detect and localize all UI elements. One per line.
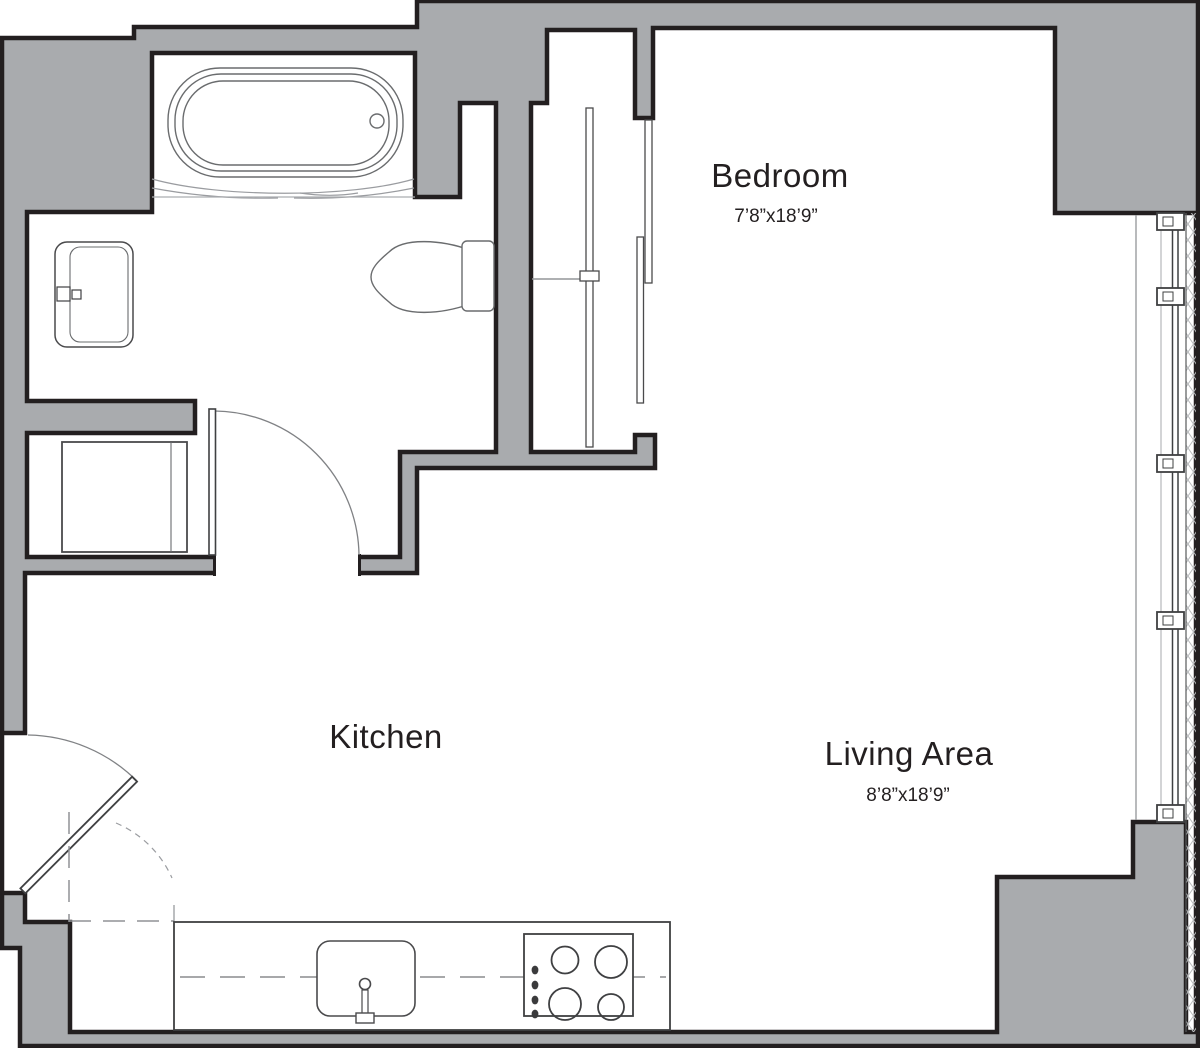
entry-door-swing-arc-dashed bbox=[116, 823, 172, 878]
sliding-panel-rear bbox=[645, 120, 652, 283]
living-area-label: Living Area bbox=[825, 735, 994, 772]
tub-drain bbox=[370, 114, 384, 128]
kitchen-label: Kitchen bbox=[329, 718, 443, 755]
bathroom-door-leaf bbox=[209, 409, 216, 555]
washer bbox=[62, 442, 187, 552]
bedroom-dimensions: 7’8”x18’9” bbox=[734, 206, 817, 227]
entry-door bbox=[20, 735, 172, 893]
sliding-panel-front bbox=[637, 237, 644, 403]
vanity-sink bbox=[55, 242, 133, 347]
toilet-tank bbox=[462, 241, 494, 311]
mullion bbox=[1157, 213, 1184, 230]
bathroom-door-swing-arc bbox=[215, 411, 359, 555]
living-area-dimensions: 8’8”x18’9” bbox=[866, 785, 949, 806]
toilet bbox=[371, 241, 494, 312]
bathroom-door bbox=[209, 409, 359, 555]
mullion bbox=[1157, 805, 1184, 822]
bedroom-label: Bedroom bbox=[711, 157, 848, 194]
mullion bbox=[1157, 288, 1184, 305]
entry-door-leaf bbox=[20, 777, 137, 894]
faucet-stem bbox=[362, 990, 368, 1014]
floor-plan-drawing: Bedroom 7’8”x18’9” Kitchen Living Area 8… bbox=[0, 0, 1200, 1048]
entry-door-swing-arc bbox=[28, 735, 137, 781]
closet bbox=[532, 108, 652, 447]
faucet-head bbox=[360, 979, 371, 990]
tub-front-curves bbox=[152, 179, 414, 198]
mullion bbox=[1157, 455, 1184, 472]
kitchen-sink bbox=[317, 941, 415, 1023]
cooktop bbox=[524, 934, 633, 1020]
closet-rod-bracket bbox=[580, 271, 599, 281]
bathtub bbox=[168, 68, 403, 177]
mullion bbox=[1157, 612, 1184, 629]
window-hatch-strip bbox=[1186, 213, 1196, 1032]
faucet-base bbox=[356, 1013, 374, 1023]
floor-plan-page: Bedroom 7’8”x18’9” Kitchen Living Area 8… bbox=[0, 0, 1200, 1048]
toilet-bowl bbox=[371, 242, 470, 313]
kitchen-counter bbox=[174, 922, 670, 1030]
bathroom-door-opening bbox=[215, 552, 359, 578]
